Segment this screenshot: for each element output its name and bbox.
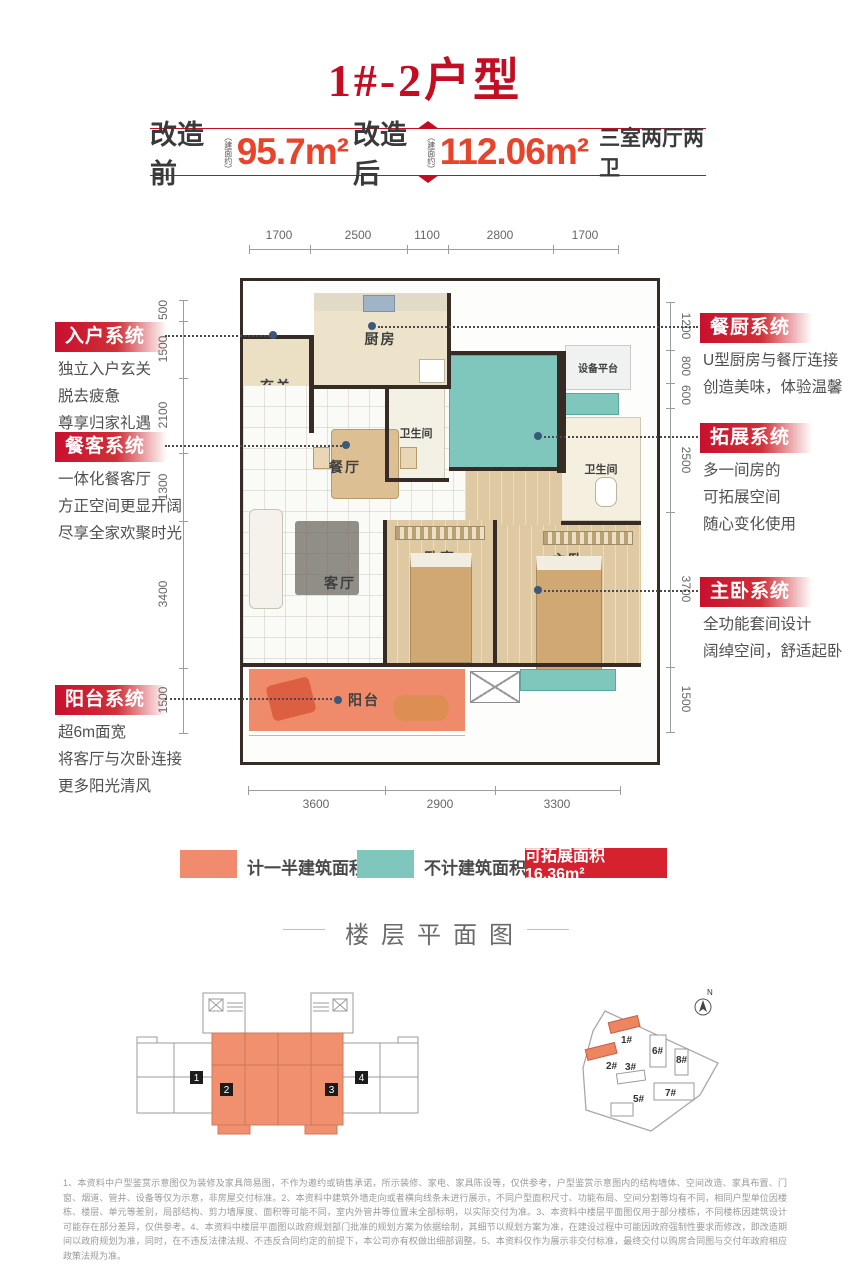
building-label-5: 5# bbox=[633, 1094, 645, 1105]
area-note: （建面约） bbox=[224, 133, 232, 171]
building-label-6: 6# bbox=[652, 1046, 664, 1057]
dim-tick bbox=[666, 302, 675, 303]
room-label-living: 客厅 bbox=[300, 573, 380, 593]
before-area-value: 95.7m² bbox=[237, 131, 348, 173]
leader-dot bbox=[368, 322, 376, 330]
site-map: N 1# 2# 3# 5# 6# 7# 8# bbox=[553, 983, 755, 1151]
dim-tick bbox=[179, 300, 188, 301]
section-title: 楼层平面图 bbox=[335, 915, 535, 950]
bed-icon bbox=[410, 553, 472, 663]
wall bbox=[383, 520, 387, 665]
building-label-7: 7# bbox=[665, 1088, 677, 1099]
leader-kitchen bbox=[378, 326, 698, 328]
callout-master-system: 主卧系统 bbox=[700, 577, 812, 607]
dim-label-top: 2500 bbox=[328, 228, 388, 242]
building-label-8: 8# bbox=[676, 1055, 688, 1066]
legend-swatch-half-area bbox=[180, 850, 237, 878]
dim-tick bbox=[249, 245, 250, 254]
wardrobe-icon bbox=[395, 526, 485, 540]
dim-label-right: 600 bbox=[679, 365, 693, 425]
wall bbox=[493, 520, 497, 665]
legend-expandable-badge: 可拓展面积 16.36m² bbox=[525, 848, 667, 878]
compass-letter: N bbox=[707, 988, 713, 997]
leader-dot bbox=[269, 331, 277, 339]
chair-icon bbox=[400, 447, 417, 469]
dim-tick bbox=[666, 383, 675, 384]
dim-tick bbox=[666, 408, 675, 409]
balcony-rail bbox=[249, 735, 465, 736]
wall bbox=[243, 663, 641, 667]
room-expandable bbox=[449, 355, 559, 471]
unit-badge-2: 2 bbox=[224, 1085, 230, 1096]
disclaimer-text: 1、本资料中户型鉴赏示意图仅为装修及家具简易图，不作为邀约或销售承诺，所示装修、… bbox=[63, 1176, 787, 1263]
dim-label-top: 1100 bbox=[397, 228, 457, 242]
dim-tick bbox=[448, 245, 449, 254]
leader-dot bbox=[342, 441, 350, 449]
legend-label-not-counted: 不计建筑面积 bbox=[424, 854, 526, 879]
wardrobe-icon bbox=[543, 531, 633, 545]
building-5 bbox=[611, 1103, 633, 1116]
dim-tick bbox=[620, 786, 621, 795]
before-label: 改造前 bbox=[150, 113, 219, 191]
dim-tick bbox=[179, 453, 188, 454]
dim-label-bottom: 3300 bbox=[527, 797, 587, 811]
layout-description: 三室两厅两卫 bbox=[599, 122, 706, 182]
dim-tick bbox=[553, 245, 554, 254]
dim-tick bbox=[248, 786, 249, 795]
dim-label-right: 1500 bbox=[679, 669, 693, 729]
teal-strip-right bbox=[565, 393, 619, 415]
callout-expand-system: 拓展系统 bbox=[700, 423, 812, 453]
dim-tick bbox=[179, 378, 188, 379]
section-line-right bbox=[527, 929, 569, 930]
dim-tick bbox=[666, 667, 675, 668]
dim-label-left: 3400 bbox=[156, 564, 170, 624]
dim-line-top bbox=[249, 249, 619, 250]
dim-label-top: 1700 bbox=[249, 228, 309, 242]
dim-label-right: 2500 bbox=[679, 430, 693, 490]
callout-entry-system: 入户系统 bbox=[55, 322, 167, 352]
section-line-left bbox=[283, 929, 325, 930]
building-label-2: 2# bbox=[606, 1061, 618, 1072]
after-label: 改造后 bbox=[353, 113, 422, 191]
page-title: 1#-2户型 bbox=[0, 44, 850, 110]
wall bbox=[557, 351, 566, 473]
dim-tick bbox=[385, 786, 386, 795]
callout-kitchen-system: 餐厨系统 bbox=[700, 313, 812, 343]
bed-icon bbox=[536, 556, 602, 671]
dim-tick bbox=[179, 668, 188, 669]
dim-tick bbox=[407, 245, 408, 254]
compass-icon: N bbox=[695, 988, 713, 1015]
wall bbox=[447, 293, 451, 389]
wall bbox=[561, 521, 641, 525]
area-banner: 改造前 （建面约） 95.7m² 改造后 （建面约） 112.06m² 三室两厅… bbox=[150, 128, 706, 176]
balcony-dot bbox=[334, 696, 342, 704]
callout-expand-lines: 多一间房的 可拓展空间 随心变化使用 bbox=[703, 457, 796, 538]
dim-tick bbox=[310, 245, 311, 254]
callout-balcony-system: 阳台系统 bbox=[55, 685, 167, 715]
flyer-page: 1#-2户型 改造前 （建面约） 95.7m² 改造后 （建面约） 112.06… bbox=[0, 0, 850, 1275]
building-2 bbox=[585, 1043, 617, 1061]
dim-label-right: 3700 bbox=[679, 559, 693, 619]
room-porch bbox=[243, 281, 311, 335]
dim-label-bottom: 3600 bbox=[286, 797, 346, 811]
building-label-3: 3# bbox=[625, 1062, 637, 1073]
wall bbox=[449, 351, 559, 355]
building-floor-plan: 1 2 3 4 bbox=[115, 985, 440, 1137]
callout-master-lines: 全功能套间设计 阔绰空间，舒适起卧 bbox=[703, 611, 843, 665]
leader-balcony bbox=[165, 698, 332, 700]
wall bbox=[449, 467, 561, 471]
floor-plan: 玄关 厨房 卫生间 设备平台 卫生间 卧室 bbox=[240, 278, 660, 765]
building-1 bbox=[608, 1016, 640, 1034]
dim-tick bbox=[179, 321, 188, 322]
leader-dot bbox=[534, 586, 542, 594]
teal-strip-bottom bbox=[520, 669, 616, 691]
dim-line-bottom bbox=[248, 790, 620, 791]
legend-label-half-area: 计一半建筑面积 bbox=[247, 854, 366, 879]
plants-icon bbox=[393, 695, 449, 721]
unit-badge-1: 1 bbox=[194, 1073, 200, 1084]
leader-entry bbox=[165, 335, 269, 337]
unit-badge-4: 4 bbox=[359, 1073, 365, 1084]
stove-icon bbox=[363, 295, 395, 312]
wall bbox=[385, 478, 449, 482]
callout-entry-lines: 独立入户玄关 脱去疲惫 尊享归家礼遇 bbox=[58, 356, 151, 437]
dim-tick bbox=[666, 350, 675, 351]
legend-swatch-not-counted bbox=[357, 850, 414, 878]
wall bbox=[309, 335, 314, 433]
room-equipment: 设备平台 bbox=[565, 345, 631, 390]
dim-tick bbox=[618, 245, 619, 254]
callout-kitchen-lines: U型厨房与餐厅连接 创造美味，体验温馨 bbox=[703, 347, 843, 401]
leader-expand bbox=[544, 436, 698, 438]
callout-dining-lines: 一体化餐客厅 方正空间更显开阔 尽享全家欢聚时光 bbox=[58, 466, 182, 547]
after-area-value: 112.06m² bbox=[440, 131, 588, 173]
toilet-icon bbox=[595, 477, 617, 507]
callout-dining-system: 餐客系统 bbox=[55, 432, 167, 462]
callout-balcony-lines: 超6m面宽 将客厅与次卧连接 更多阳光清风 bbox=[58, 719, 182, 800]
unit-badge-3: 3 bbox=[329, 1085, 335, 1096]
leader-master bbox=[544, 590, 698, 592]
wall bbox=[385, 385, 389, 482]
dim-tick bbox=[495, 786, 496, 795]
dim-tick bbox=[666, 512, 675, 513]
wall bbox=[311, 385, 449, 389]
leader-dot bbox=[534, 432, 542, 440]
dim-label-top: 2800 bbox=[470, 228, 530, 242]
dim-tick bbox=[666, 732, 675, 733]
room-label-dining: 餐厅 bbox=[305, 457, 385, 477]
building-label-1: 1# bbox=[621, 1035, 633, 1046]
fridge-icon bbox=[419, 359, 445, 383]
dim-label-bottom: 2900 bbox=[410, 797, 470, 811]
dim-label-top: 1700 bbox=[555, 228, 615, 242]
shaft-icon bbox=[470, 671, 520, 703]
leader-dining bbox=[165, 445, 342, 447]
area-note: （建面约） bbox=[427, 133, 435, 171]
sofa-icon bbox=[249, 509, 283, 609]
